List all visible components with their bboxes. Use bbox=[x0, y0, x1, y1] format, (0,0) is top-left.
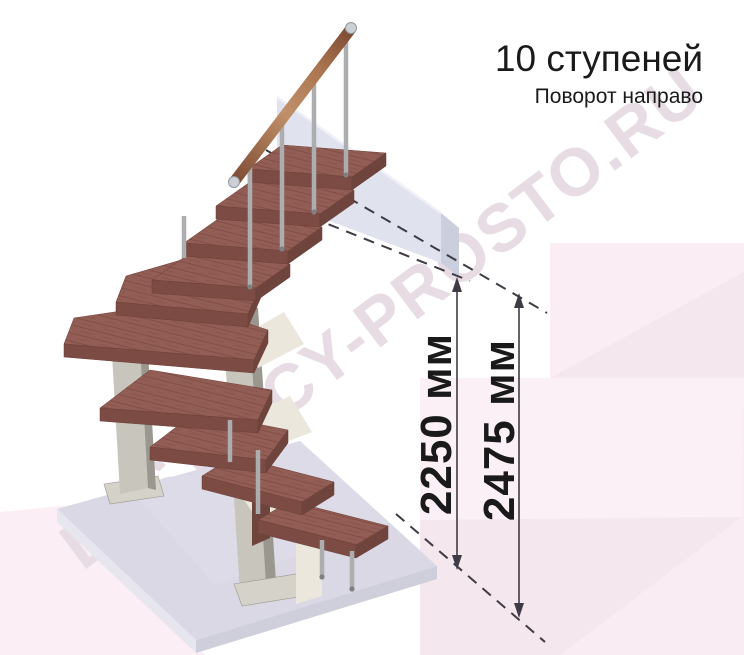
page-title: 10 ступеней bbox=[495, 38, 703, 81]
rail-end-cap bbox=[229, 177, 240, 188]
page-subtitle: Поворот направо bbox=[495, 85, 703, 109]
title-block: 10 ступеней Поворот направо bbox=[495, 38, 703, 109]
staircase-diagram: LESTNICY-PROSTO.RU bbox=[0, 0, 744, 655]
dimension-label-2250: 2250 мм bbox=[412, 333, 462, 515]
rail-top-cap bbox=[346, 23, 357, 34]
dimension-label-2475: 2475 мм bbox=[475, 339, 525, 521]
